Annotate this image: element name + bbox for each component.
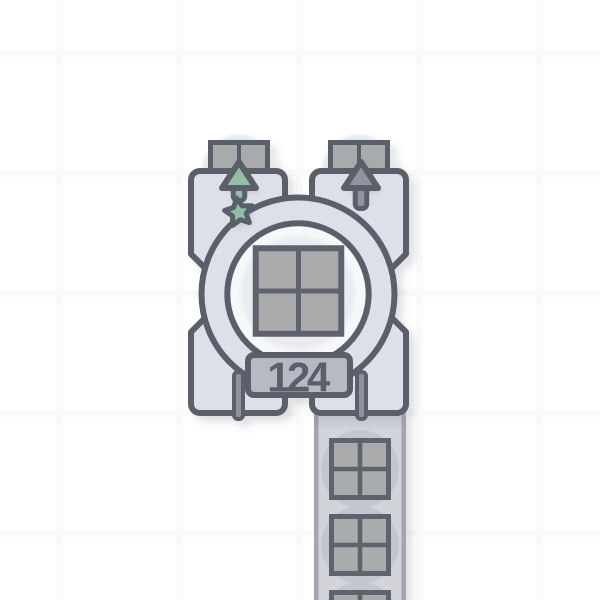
svg-text:124: 124: [267, 354, 331, 401]
